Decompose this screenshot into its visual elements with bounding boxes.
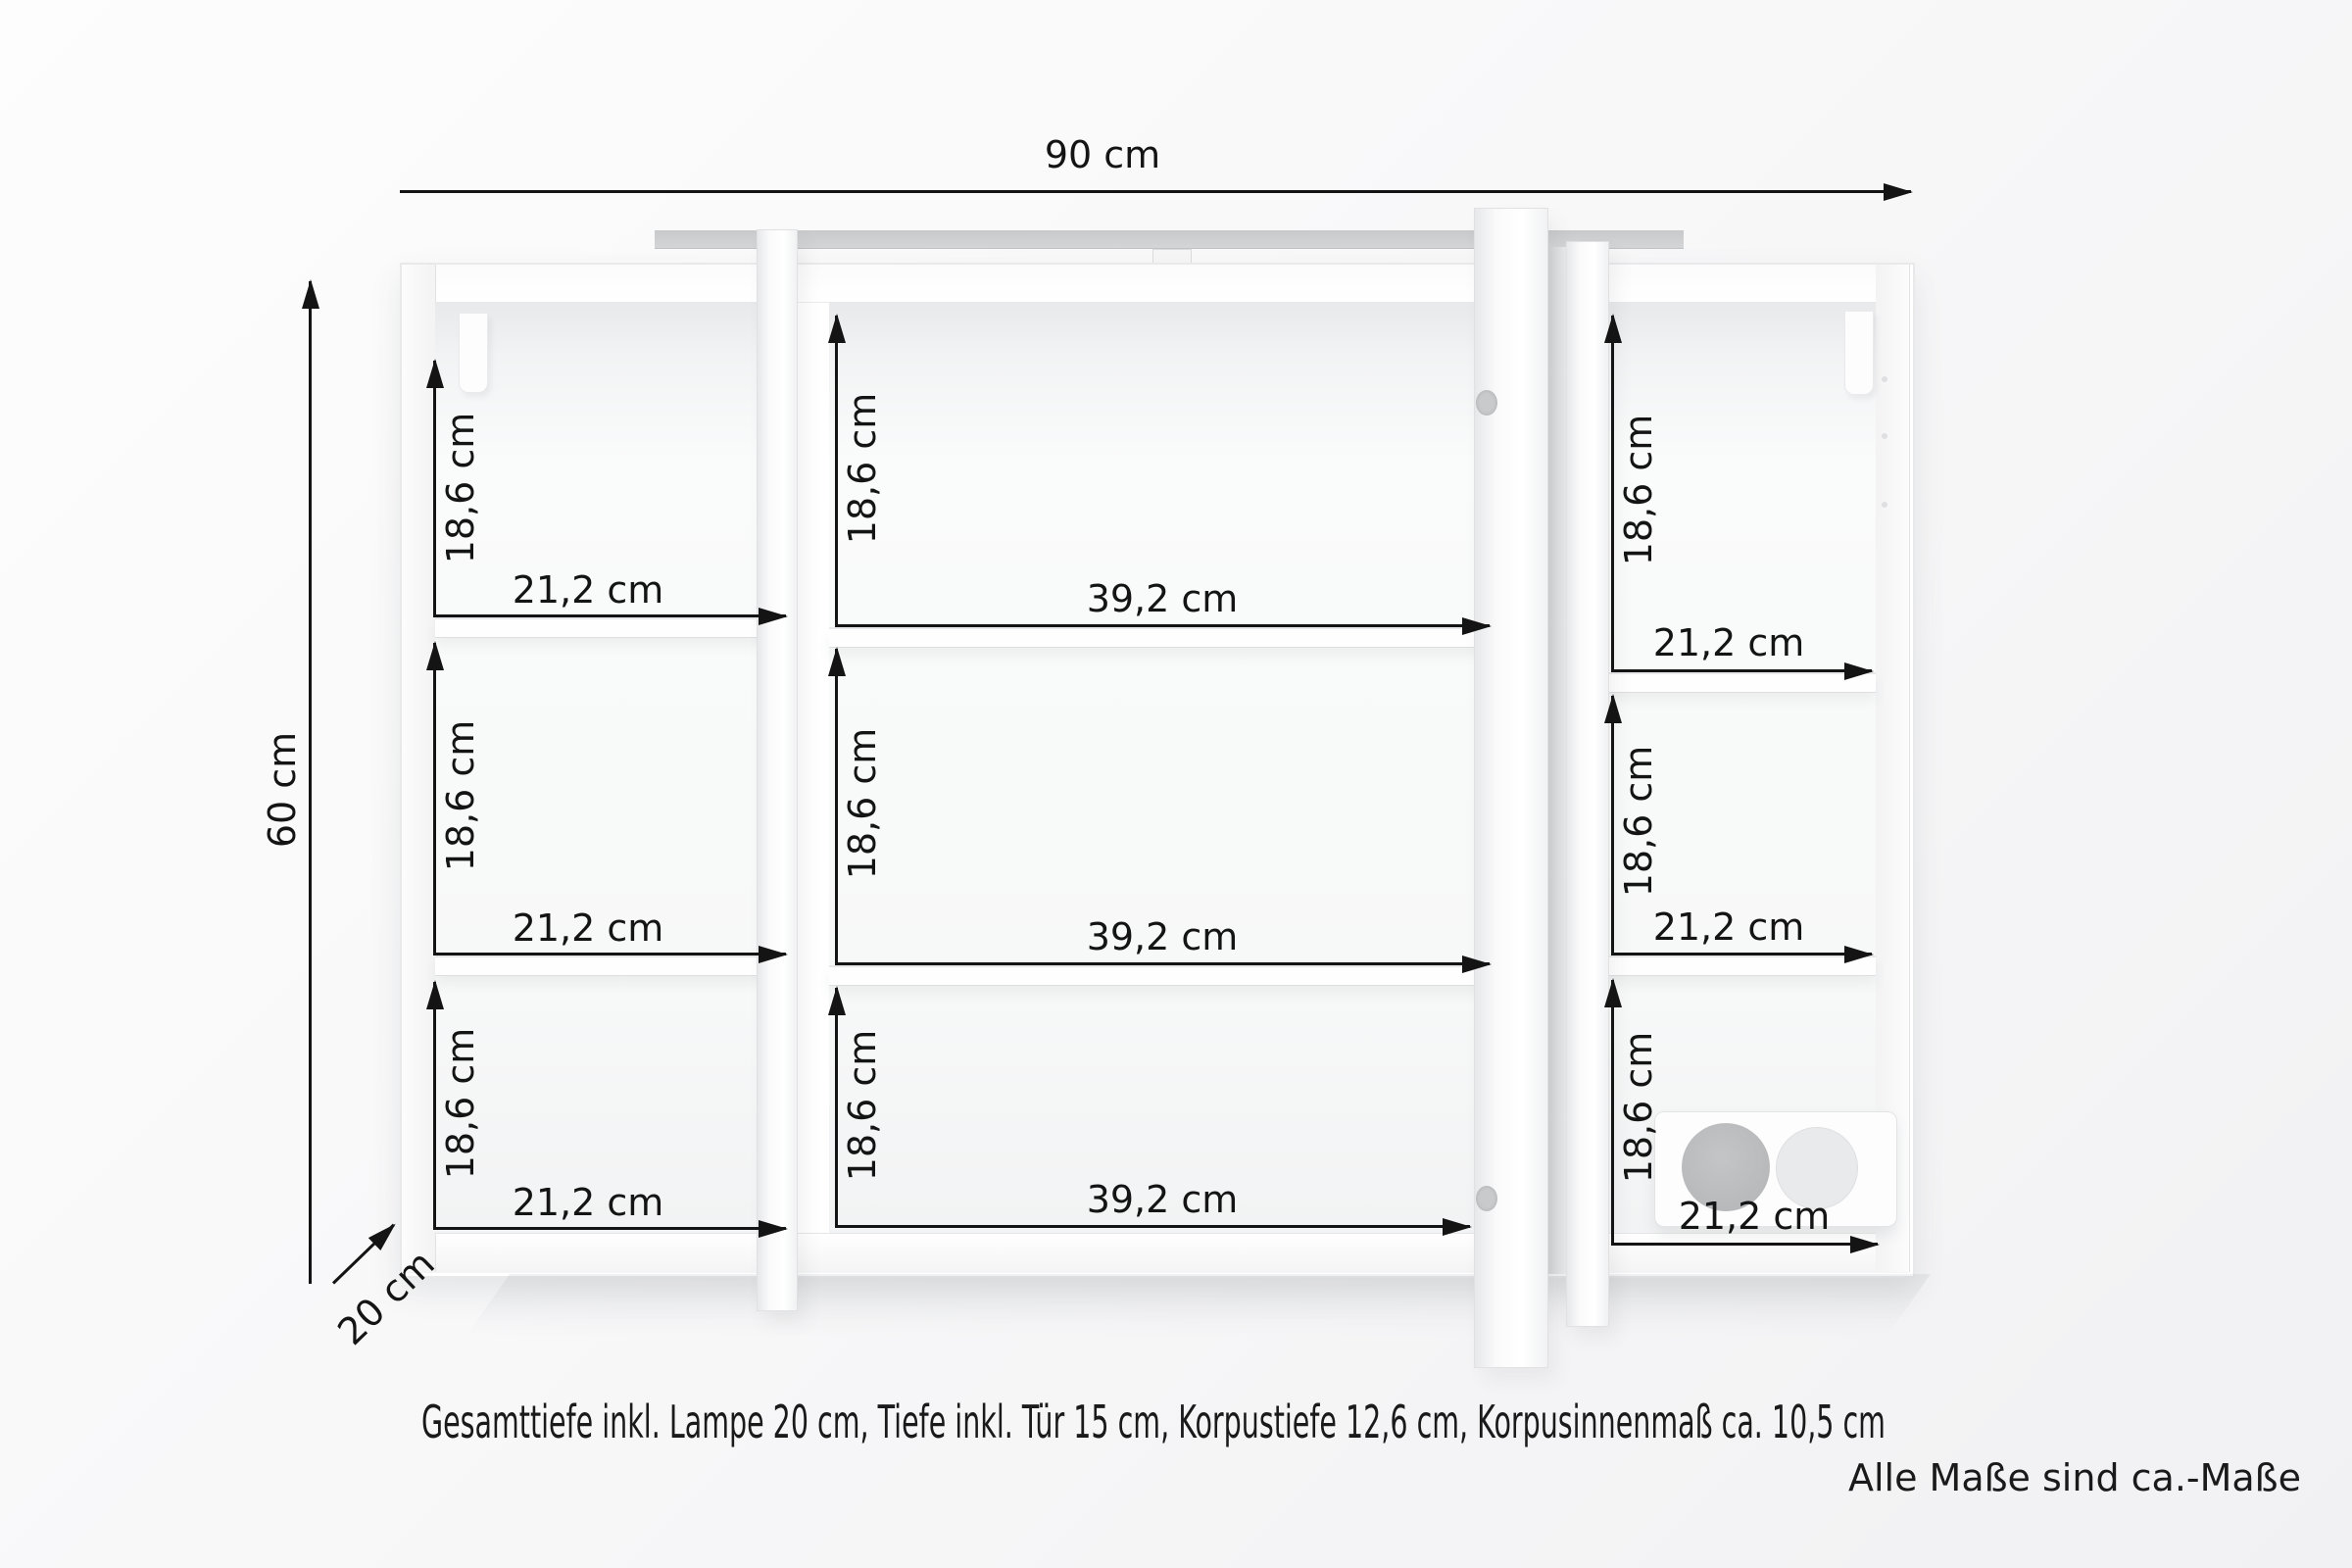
door-right (1566, 241, 1609, 1327)
shelf-pin-hole (1882, 376, 1887, 382)
note-depth-details: Gesamttiefe inkl. Lampe 20 cm, Tiefe ink… (421, 1396, 1886, 1448)
dim-right-c3-width-label: 21,2 cm (1679, 1195, 1831, 1238)
cabinet-left-wall (402, 265, 436, 1272)
dim-middle-c1-height-line (835, 316, 838, 625)
section-left-interior (435, 302, 788, 1233)
dim-middle-c3-width-label: 39,2 cm (1087, 1178, 1239, 1221)
dim-left-c1-height-line (433, 361, 436, 615)
note-disclaimer: Alle Maße sind ca.-Maße (1848, 1456, 2301, 1499)
door-left (757, 229, 798, 1311)
shelf-right-1 (1607, 672, 1876, 693)
shelf-left-2 (435, 955, 788, 976)
dim-middle-c1-height-label: 18,6 cm (841, 393, 884, 545)
shelf-right-2 (1607, 955, 1876, 976)
dim-left-c2-height-label: 18,6 cm (439, 720, 482, 872)
dim-middle-c3-height-label: 18,6 cm (841, 1030, 884, 1182)
dim-overall-width-line (400, 190, 1911, 193)
dim-left-c2-height-line (433, 643, 436, 954)
dim-overall-height-label: 60 cm (261, 732, 304, 848)
dim-left-c3-width-line (433, 1227, 786, 1230)
shelf-middle-2 (829, 965, 1488, 986)
dim-right-c2-height-line (1611, 696, 1614, 954)
dim-left-c2-width-line (433, 953, 786, 955)
shelf-pin-hole (1882, 502, 1887, 508)
dim-middle-c2-height-line (835, 649, 838, 963)
dim-right-c2-height-label: 18,6 cm (1617, 746, 1660, 898)
dim-left-c3-height-line (433, 982, 436, 1228)
hinge-left-wall (459, 314, 488, 393)
cabinet-top-board (402, 265, 1909, 303)
dim-right-c3-width-line (1611, 1243, 1878, 1246)
dim-overall-width-label: 90 cm (1045, 133, 1160, 176)
door-gap-shade (1546, 247, 1566, 1274)
dim-left-c1-width-line (433, 614, 786, 617)
dim-left-c3-height-label: 18,6 cm (439, 1028, 482, 1180)
door-hinge-dot-bottom (1476, 1186, 1497, 1211)
dim-middle-c3-width-line (835, 1225, 1470, 1228)
dim-right-c3-height-line (1611, 980, 1614, 1244)
dim-middle-c2-height-label: 18,6 cm (841, 728, 884, 880)
dim-right-c1-height-label: 18,6 cm (1617, 415, 1660, 566)
dim-overall-height-line (309, 281, 312, 1284)
dim-left-c1-height-label: 18,6 cm (439, 413, 482, 564)
dim-right-c1-width-line (1611, 669, 1872, 672)
dim-right-c2-width-line (1611, 953, 1872, 955)
dim-depth-label: 20 cm (329, 1242, 443, 1353)
dim-middle-c2-width-line (835, 962, 1490, 965)
dim-left-c3-width-label: 21,2 cm (513, 1181, 664, 1224)
cabinet-bottom-board (402, 1233, 1909, 1273)
dim-left-c2-width-label: 21,2 cm (513, 906, 664, 950)
cabinet-shadow (465, 1274, 1931, 1337)
dim-middle-c3-height-line (835, 988, 838, 1226)
hinge-right-wall (1844, 312, 1874, 395)
dimension-diagram-canvas: 90 cm 60 cm 20 cm 18,6 cm 21,2 cm 18,6 c… (0, 0, 2352, 1568)
door-hinge-dot-top (1476, 390, 1497, 416)
dim-middle-c1-width-line (835, 624, 1490, 627)
dim-middle-c1-width-label: 39,2 cm (1087, 577, 1239, 620)
shelf-left-1 (435, 617, 788, 638)
section-middle-interior (829, 302, 1488, 1233)
dim-right-c1-width-label: 21,2 cm (1653, 621, 1805, 664)
dim-right-c1-height-line (1611, 316, 1614, 670)
dim-middle-c2-width-label: 39,2 cm (1087, 915, 1239, 958)
shelf-pin-hole (1882, 433, 1887, 439)
shelf-middle-1 (829, 627, 1488, 648)
dim-right-c3-height-label: 18,6 cm (1617, 1032, 1660, 1184)
dim-right-c2-width-label: 21,2 cm (1653, 906, 1805, 949)
dim-left-c1-width-label: 21,2 cm (513, 568, 664, 612)
